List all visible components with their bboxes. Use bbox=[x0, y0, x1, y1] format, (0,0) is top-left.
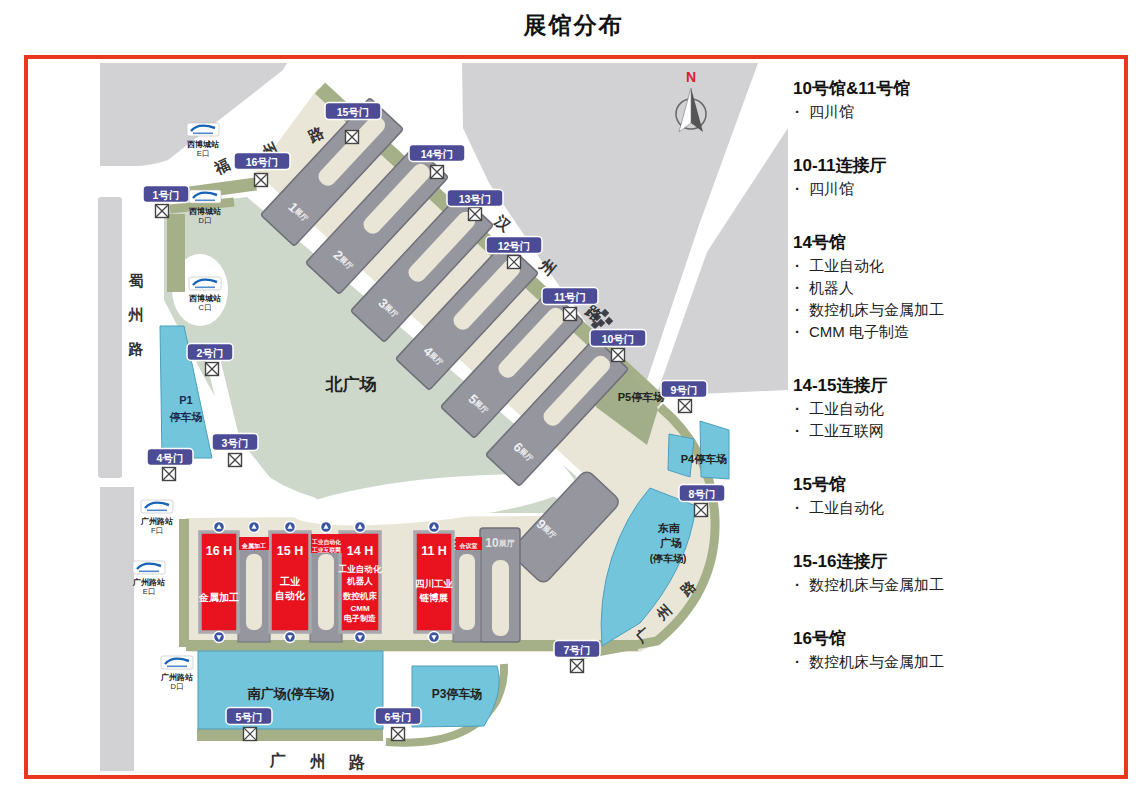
p1-parking-label: P1 bbox=[179, 394, 192, 406]
road-name-guangzhou_bottom: 广州路 bbox=[269, 751, 365, 771]
gate-3: 3号门 bbox=[212, 434, 258, 467]
legend-item-list: 工业自动化 bbox=[793, 497, 1123, 519]
legend-item: 工业自动化 bbox=[793, 497, 1123, 519]
red-connector-label-2: 会议室 bbox=[455, 537, 482, 550]
connector-building bbox=[238, 540, 270, 642]
red-hall-category: 金属加工 bbox=[198, 592, 239, 603]
legend-item: 机器人 bbox=[793, 277, 1123, 299]
metro-station-name: 广州路站 bbox=[160, 672, 193, 682]
legend-item: 四川馆 bbox=[793, 101, 1123, 123]
legend-item-list: 四川馆 bbox=[793, 101, 1123, 123]
red-hall-category: 机器人 bbox=[346, 576, 373, 586]
gate-label: 12号门 bbox=[498, 240, 531, 252]
p5-parking-label: P5停车场 bbox=[618, 391, 664, 403]
road-char: 路 bbox=[128, 340, 144, 357]
red-hall-category: 数控机床 bbox=[342, 591, 378, 601]
road-char: 福 bbox=[211, 155, 233, 177]
entrance-arrow-icon bbox=[355, 522, 366, 533]
red-hall-id: 11 H bbox=[421, 544, 447, 558]
southeast-plaza-label: 广场 bbox=[659, 537, 682, 549]
red-hall-category: 链博展 bbox=[419, 592, 449, 603]
p4-parking-area bbox=[700, 421, 729, 479]
p1-parking-label: 停车场 bbox=[169, 411, 203, 423]
gate-label: 14号门 bbox=[421, 148, 454, 160]
red-hall-id: 15 H bbox=[277, 544, 303, 558]
legend-item-list: 数控机床与金属加工 bbox=[793, 574, 1123, 596]
metro-station-3: 广州路站F口 bbox=[140, 500, 173, 535]
gate-label: 10号门 bbox=[602, 333, 635, 345]
metro-station-name: 西博城站 bbox=[189, 207, 221, 216]
legend-item-list: 数控机床与金属加工 bbox=[793, 651, 1123, 673]
red-hall-14H: 14 H工业自动化机器人数控机床CMM电子制造 bbox=[338, 532, 383, 632]
p3-parking-label: P3停车场 bbox=[432, 687, 483, 701]
red-hall-15H: 15 H工业自动化 bbox=[270, 532, 310, 632]
gate-label: 11号门 bbox=[554, 291, 586, 303]
metro-station-name: 西博城站 bbox=[187, 140, 219, 149]
road-char: 广 bbox=[269, 751, 286, 769]
connector-building bbox=[453, 540, 481, 642]
compass-north-label: N bbox=[686, 69, 696, 85]
road-name-shuzhou: 蜀州路 bbox=[128, 272, 144, 357]
legend-heading: 10号馆&11号馆 bbox=[793, 78, 1123, 100]
legend-heading: 15-16连接厅 bbox=[793, 551, 1123, 573]
red-hall-category: 自动化 bbox=[275, 590, 306, 601]
connector-label: 工业自动化 bbox=[311, 538, 341, 546]
legend-heading: 10-11连接厅 bbox=[793, 155, 1123, 177]
metro-station-4: 广州路站E口 bbox=[132, 561, 165, 596]
connector-building bbox=[310, 540, 342, 642]
north-plaza-label: 北广场 bbox=[325, 375, 377, 394]
gate-label: 2号门 bbox=[197, 347, 224, 359]
hall-courtyard bbox=[492, 560, 509, 636]
entrance-arrow-icon bbox=[214, 632, 225, 643]
connector-courtyard bbox=[318, 554, 334, 630]
metro-station-name: 广州路站 bbox=[140, 516, 173, 526]
city-block-topleft bbox=[100, 63, 287, 166]
entrance-arrow-icon bbox=[321, 522, 332, 533]
strip-arm-left bbox=[179, 519, 189, 647]
strip-south-plaza bbox=[197, 729, 383, 741]
legend-item: 工业自动化 bbox=[793, 255, 1123, 277]
metro-wordmark bbox=[139, 571, 159, 573]
hall-10: 10展厅 bbox=[480, 528, 520, 642]
legend-item: 工业互联网 bbox=[793, 420, 1123, 442]
red-hall-category: 四川工业 bbox=[415, 578, 453, 589]
metro-wordmark bbox=[193, 133, 213, 135]
metro-exit-label: F口 bbox=[151, 526, 163, 535]
legend-item: 四川馆 bbox=[793, 178, 1123, 200]
gate-7: 7号门 bbox=[554, 641, 600, 673]
entrance-arrow-icon bbox=[285, 632, 296, 643]
legend-item: 数控机床与金属加工 bbox=[793, 651, 1123, 673]
road-char: 州 bbox=[309, 753, 326, 770]
red-halls-layer: 16 H金属加工15 H工业自动化14 H工业自动化机器人数控机床CMM电子制造… bbox=[198, 522, 482, 643]
red-connector-label-1: 工业自动化工业互联网 bbox=[311, 534, 342, 554]
connector-label: 会议室 bbox=[459, 542, 478, 550]
red-hall-id: 14 H bbox=[347, 544, 373, 558]
metro-station-0: 西博城站E口 bbox=[187, 123, 219, 158]
gate-label: 15号门 bbox=[337, 106, 370, 118]
legend-item: 工业自动化 bbox=[793, 398, 1123, 420]
red-hall-id: 16 H bbox=[206, 544, 232, 558]
metro-station-name: 西博城站 bbox=[189, 294, 221, 303]
road-char: 蜀 bbox=[128, 272, 144, 289]
entrance-arrow-icon bbox=[429, 522, 440, 533]
gate-4: 4号门 bbox=[147, 449, 193, 481]
legend-item: CMM 电子制造 bbox=[793, 321, 1123, 343]
entrance-arrow-icon bbox=[214, 522, 225, 533]
legend-heading: 14号馆 bbox=[793, 232, 1123, 254]
red-hall-category: 工业自动化 bbox=[338, 564, 383, 574]
southeast-plaza-label: (停车场) bbox=[650, 553, 687, 564]
metro-exit-label: C口 bbox=[199, 303, 212, 312]
legend-heading: 14-15连接厅 bbox=[793, 375, 1123, 397]
legend-panel: 10号馆&11号馆四川馆10-11连接厅四川馆14号馆工业自动化机器人数控机床与… bbox=[793, 78, 1123, 705]
p4-parking-label: P4停车场 bbox=[681, 453, 727, 465]
city-block-left-lower bbox=[100, 487, 134, 771]
metro-exit-label: D口 bbox=[171, 682, 184, 691]
legend-item-list: 工业自动化机器人数控机床与金属加工CMM 电子制造 bbox=[793, 255, 1123, 343]
connector-label: 金属加工 bbox=[241, 542, 266, 550]
gate-label: 1号门 bbox=[153, 189, 180, 201]
legend-item: 数控机床与金属加工 bbox=[793, 299, 1123, 321]
metro-exit-label: E口 bbox=[143, 587, 156, 596]
gate-label: 4号门 bbox=[157, 452, 184, 464]
metro-wordmark bbox=[167, 666, 187, 668]
red-hall-11H: 11 H四川工业链博展 bbox=[415, 532, 453, 632]
metro-exit-label: E口 bbox=[197, 149, 210, 158]
metro-station-5: 广州路站D口 bbox=[160, 656, 193, 691]
connector-courtyard bbox=[459, 554, 475, 630]
south-plaza-label: 南广场(停车场) bbox=[247, 686, 335, 701]
gate-label: 5号门 bbox=[236, 711, 263, 723]
road-char: 州 bbox=[128, 306, 144, 323]
southeast-plaza-label: 东南 bbox=[657, 522, 680, 534]
legend-heading: 16号馆 bbox=[793, 628, 1123, 650]
legend-item-list: 四川馆 bbox=[793, 178, 1123, 200]
metro-wordmark bbox=[147, 510, 167, 512]
red-hall-category: 电子制造 bbox=[344, 614, 376, 623]
gate-label: 8号门 bbox=[689, 488, 716, 500]
red-hall-category: CMM bbox=[350, 604, 369, 613]
gate-label: 3号门 bbox=[222, 437, 249, 449]
legend-heading: 15号馆 bbox=[793, 474, 1123, 496]
legend-item-list: 工业自动化工业互联网 bbox=[793, 398, 1123, 442]
entrance-arrow-icon bbox=[429, 632, 440, 643]
metro-station-name: 广州路站 bbox=[132, 577, 165, 587]
gate-label: 7号门 bbox=[564, 644, 591, 656]
metro-wordmark bbox=[195, 287, 215, 289]
red-hall-16H: 16 H金属加工 bbox=[198, 532, 239, 632]
gate-label: 6号门 bbox=[385, 711, 412, 723]
gate-label: 16号门 bbox=[246, 156, 279, 168]
metro-wordmark bbox=[195, 200, 215, 202]
legend-item: 数控机床与金属加工 bbox=[793, 574, 1123, 596]
red-hall-category: 工业 bbox=[279, 576, 301, 587]
city-block-left-upper bbox=[98, 197, 122, 478]
entrance-arrow-icon bbox=[355, 632, 366, 643]
metro-exit-label: D口 bbox=[199, 216, 212, 225]
connector-courtyard bbox=[246, 554, 262, 630]
entrance-arrow-icon bbox=[249, 522, 260, 533]
red-connector-label-0: 金属加工 bbox=[239, 537, 269, 550]
strip-west bbox=[167, 214, 185, 292]
road-char: 路 bbox=[348, 753, 365, 771]
entrance-arrow-icon bbox=[285, 522, 296, 533]
gate-9: 9号门 bbox=[661, 381, 707, 413]
gate-label: 13号门 bbox=[459, 193, 492, 205]
gate-label: 9号门 bbox=[671, 384, 698, 396]
connector-label: 工业互联网 bbox=[311, 546, 341, 554]
